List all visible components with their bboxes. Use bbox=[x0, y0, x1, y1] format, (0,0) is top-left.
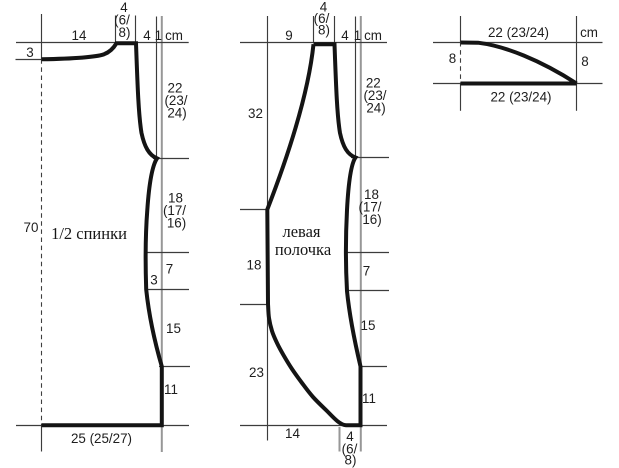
svg-text:8): 8) bbox=[119, 25, 131, 40]
svg-text:24): 24) bbox=[167, 106, 186, 121]
svg-text:25 (25/27): 25 (25/27) bbox=[71, 431, 132, 446]
svg-text:32: 32 bbox=[248, 106, 263, 121]
svg-text:14: 14 bbox=[285, 426, 300, 441]
svg-text:8): 8) bbox=[345, 453, 357, 468]
svg-text:16): 16) bbox=[362, 212, 381, 227]
svg-text:4: 4 bbox=[143, 28, 151, 43]
svg-text:cm: cm bbox=[364, 28, 382, 43]
svg-text:9: 9 bbox=[285, 28, 292, 43]
svg-text:3: 3 bbox=[150, 273, 157, 288]
svg-text:7: 7 bbox=[363, 264, 370, 279]
svg-text:70: 70 bbox=[24, 220, 39, 235]
svg-text:22 (23/24): 22 (23/24) bbox=[488, 25, 549, 40]
svg-text:3: 3 bbox=[26, 45, 33, 60]
svg-text:15: 15 bbox=[166, 321, 181, 336]
svg-text:15: 15 bbox=[361, 318, 376, 333]
svg-text:8: 8 bbox=[581, 54, 588, 69]
svg-text:cm: cm bbox=[165, 28, 183, 43]
svg-text:8): 8) bbox=[318, 23, 330, 38]
svg-text:14: 14 bbox=[72, 28, 87, 43]
svg-text:1: 1 bbox=[155, 28, 162, 43]
svg-text:cm: cm bbox=[580, 25, 598, 40]
svg-text:23: 23 bbox=[249, 365, 264, 380]
svg-text:11: 11 bbox=[164, 382, 178, 397]
svg-text:18: 18 bbox=[247, 258, 262, 273]
svg-text:1/2 спинки: 1/2 спинки bbox=[51, 224, 127, 243]
svg-text:11: 11 bbox=[362, 391, 376, 406]
svg-text:24): 24) bbox=[366, 101, 385, 116]
svg-text:8: 8 bbox=[449, 51, 456, 66]
svg-text:1: 1 bbox=[354, 28, 361, 43]
svg-text:полочка: полочка bbox=[275, 240, 332, 259]
svg-text:левая: левая bbox=[282, 222, 320, 241]
svg-text:16): 16) bbox=[167, 216, 186, 231]
svg-text:7: 7 bbox=[166, 262, 173, 277]
svg-text:4: 4 bbox=[341, 28, 349, 43]
svg-text:22 (23/24): 22 (23/24) bbox=[490, 90, 551, 105]
